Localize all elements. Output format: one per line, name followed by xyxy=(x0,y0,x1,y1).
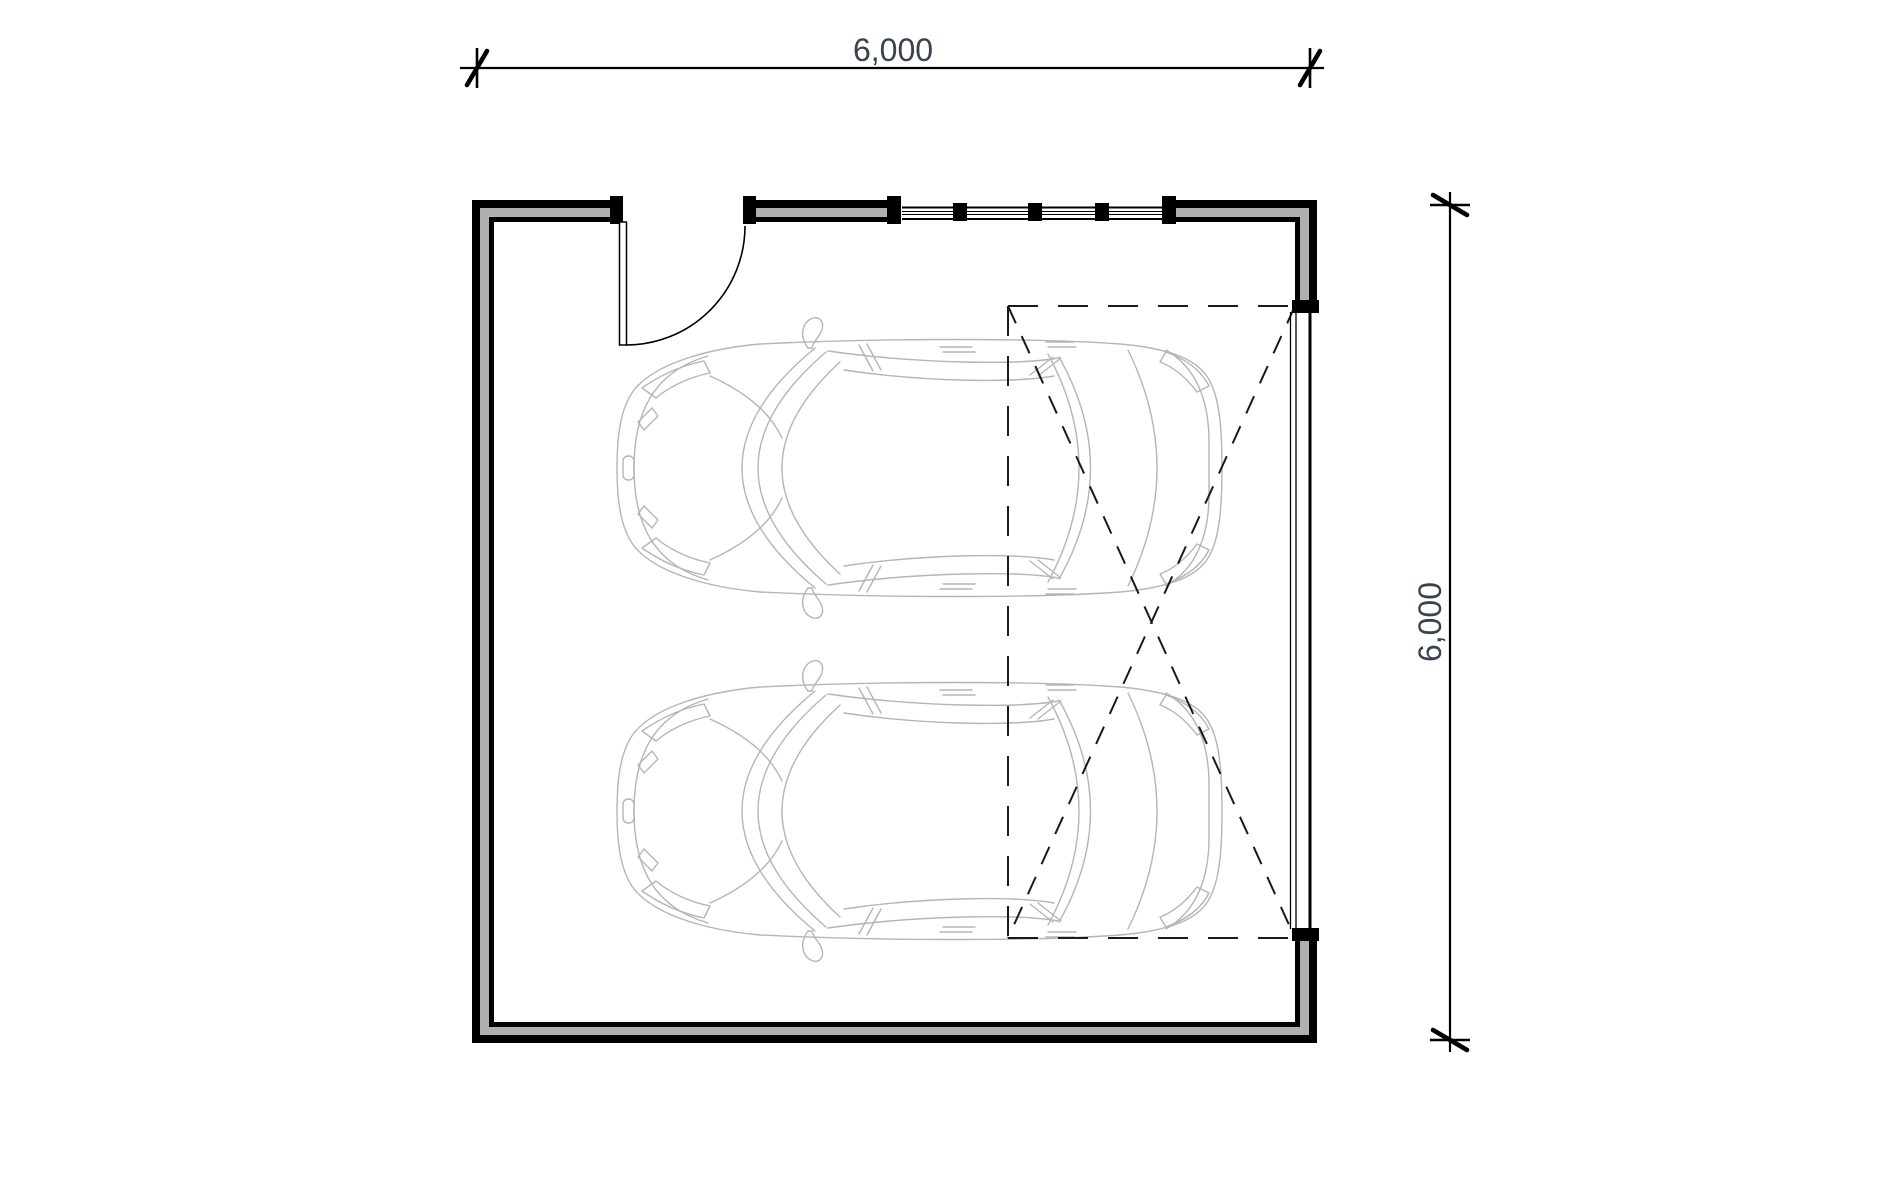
window-jamb-left xyxy=(887,196,901,224)
garage-door-jamb-top xyxy=(1292,300,1319,313)
garage-door-jamb-bottom xyxy=(1292,928,1319,941)
top-dimension: 6,000 xyxy=(460,32,1324,88)
entry-door-opening xyxy=(622,195,743,223)
door-jamb-right xyxy=(743,196,756,224)
window-mullion-3 xyxy=(1095,203,1109,221)
window-jamb-right xyxy=(1162,196,1176,224)
window-mullion-1 xyxy=(953,203,967,221)
right-dimension-label: 6,000 xyxy=(1412,582,1448,662)
window-mullion-2 xyxy=(1028,203,1042,221)
garage-floor-plan: 6,000 6,000 xyxy=(0,0,1900,1187)
garage-interior xyxy=(494,222,1295,1022)
door-jamb-left xyxy=(610,196,623,224)
garage-walls xyxy=(472,195,1318,1043)
door-leaf xyxy=(620,222,627,345)
floor-plan-canvas: 6,000 6,000 xyxy=(0,0,1900,1187)
top-dimension-label: 6,000 xyxy=(853,32,933,68)
right-dimension: 6,000 xyxy=(1412,192,1470,1052)
